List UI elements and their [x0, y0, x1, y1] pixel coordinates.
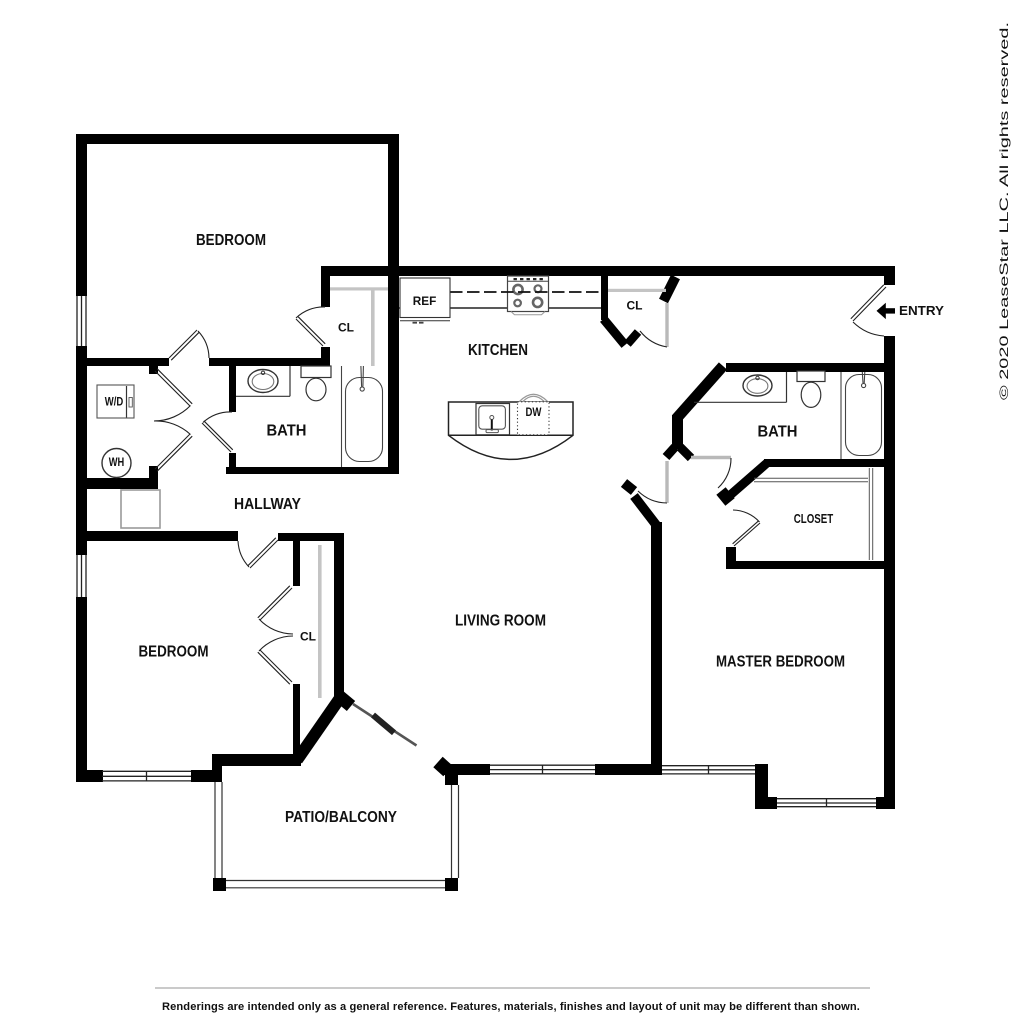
svg-text:MASTER BEDROOM: MASTER BEDROOM — [716, 654, 845, 671]
svg-text:CL: CL — [627, 299, 643, 313]
svg-text:CLOSET: CLOSET — [794, 511, 834, 526]
svg-text:PATIO/BALCONY: PATIO/BALCONY — [285, 809, 398, 826]
svg-text:REF: REF — [413, 294, 437, 308]
svg-text:BEDROOM: BEDROOM — [139, 644, 209, 661]
svg-text:BEDROOM: BEDROOM — [196, 232, 266, 249]
svg-text:BATH: BATH — [267, 423, 307, 440]
svg-text:CL: CL — [300, 630, 316, 644]
svg-text:W/D: W/D — [105, 394, 124, 408]
svg-text:WH: WH — [109, 455, 125, 469]
svg-text:KITCHEN: KITCHEN — [468, 342, 528, 359]
svg-text:LIVING ROOM: LIVING ROOM — [455, 613, 546, 630]
svg-text:Renderings are intended only a: Renderings are intended only as a genera… — [162, 1001, 860, 1013]
svg-text:HALLWAY: HALLWAY — [234, 496, 302, 513]
svg-text:© 2020 LeaseStar LLC. All righ: © 2020 LeaseStar LLC. All rights reserve… — [997, 22, 1011, 400]
svg-text:CL: CL — [338, 321, 354, 335]
svg-text:ENTRY: ENTRY — [899, 303, 944, 318]
svg-text:BATH: BATH — [758, 424, 798, 441]
svg-text:DW: DW — [526, 405, 543, 419]
